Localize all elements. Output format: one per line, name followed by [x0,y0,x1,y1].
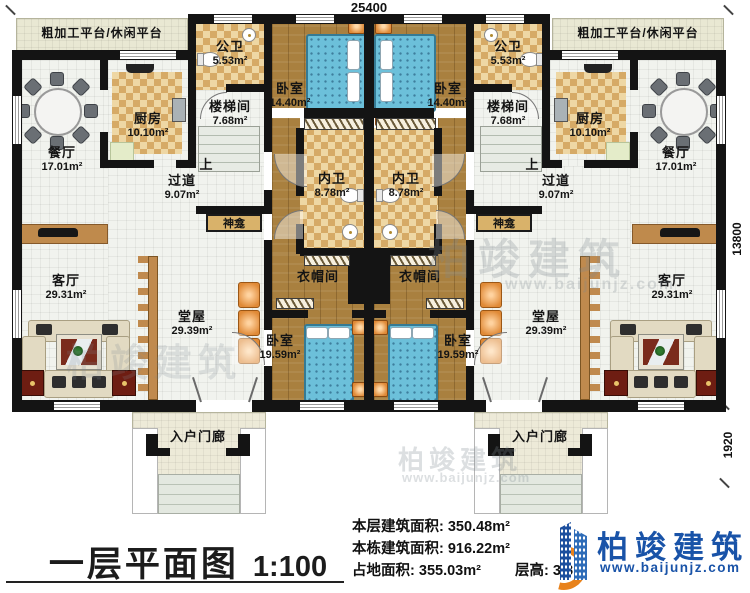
dimension-tick [5,5,16,16]
room-area: 5.53m² [474,55,542,67]
room-name: 楼梯间 [196,100,264,115]
room-area: 7.68m² [474,115,542,127]
room-name: 餐厅 [22,146,102,161]
dining-table-right [660,88,708,136]
sofa-cushion [102,324,118,335]
window [717,290,725,338]
wall [264,240,272,330]
platform-left-label: 粗加工平台/休闲平台 [17,27,187,40]
room-label-kitchen-left: 厨房 10.10m² [108,112,188,139]
dimension-tick [719,478,730,489]
nightstand [372,382,388,397]
room-label-bedroombottom-right: 卧室 19.59m² [434,334,482,361]
plan-scale: 1:100 [253,551,327,583]
wall [304,108,364,118]
up-label-left: 上 [194,158,218,173]
platform-right-label: 粗加工平台/休闲平台 [553,27,723,40]
pillow [347,72,360,102]
plan-title: 一层平面图1:100 [28,536,348,587]
room-label-publicbath-left: 公卫 5.53m² [196,40,264,67]
room-area: 29.31m² [28,289,104,301]
room-name: 过道 [520,174,592,189]
window [296,15,334,23]
logo-tower [560,522,571,580]
window [404,15,442,23]
room-area: 9.07m² [146,189,218,201]
room-name: 卧室 [256,334,304,349]
room-area: 19.59m² [434,349,482,361]
window [13,290,21,338]
tv [38,228,78,237]
wall [100,160,154,168]
room-label-living-left: 客厅 29.31m² [28,274,104,301]
wall [542,400,726,412]
window [120,51,176,59]
wall [196,206,272,214]
up-label-right: 上 [520,158,544,173]
porch-steps-left [158,474,240,514]
room-name: 客厅 [634,274,710,289]
wall [466,206,542,214]
room-label-closet-right: 衣帽间 [378,270,462,285]
wardrobe-hatch [426,298,464,309]
room-name: 楼梯间 [474,100,542,115]
brand-building-icon [545,522,591,586]
brand-logo: 柏竣建筑 www.baijunjz.com [545,520,745,590]
room-name: 堂屋 [504,310,588,325]
side-table [604,370,628,396]
shrine-niche-right: 神龛 [476,214,532,232]
room-area: 9.07m² [520,189,592,201]
brand-website: www.baijunjz.com [600,560,741,575]
dimension-top: 25400 [334,0,404,15]
shrine-label: 神龛 [208,218,260,230]
wardrobe-hatch [390,255,436,266]
wall [188,24,196,164]
room-name: 内卫 [374,172,438,187]
platform-left: 粗加工平台/休闲平台 [16,18,188,52]
room-label-bedroombottom-left: 卧室 19.59m² [256,334,304,361]
chair [50,72,64,86]
wall [630,60,638,90]
wall [466,366,474,400]
wall [474,84,512,92]
sink [382,224,398,240]
room-label-stairwell-left: 楼梯间 7.68m² [196,100,264,127]
plant [73,346,83,356]
stat-label: 本层建筑面积: [352,519,444,535]
window [394,402,438,410]
pillow [380,40,393,70]
room-label-hall-left: 堂屋 29.39m² [150,310,234,337]
room-name: 衣帽间 [378,270,462,285]
room-area: 7.68m² [196,115,264,127]
dining-table-left [34,88,82,136]
wall [584,160,638,168]
sofa-cushion [654,376,668,388]
room-area: 17.01m² [636,161,716,173]
room-area: 29.31m² [634,289,710,301]
wall-party [364,14,374,412]
room-area: 14.40m² [262,97,318,109]
wall [100,60,108,90]
window [562,51,618,59]
range-hood-right [584,64,612,73]
room-name: 公卫 [474,40,542,55]
stat-value: 916.22m² [448,541,510,557]
room-label-corridor-right: 过道 9.07m² [520,174,592,201]
room-area: 29.39m² [504,325,588,337]
chair [84,104,98,118]
chair [642,104,656,118]
platform-right: 粗加工平台/休闲平台 [552,18,724,52]
sofa-cushion [634,376,648,388]
room-area: 8.78m² [300,187,364,199]
plan-title-text: 一层平面图 [49,545,239,584]
title-underline [6,581,344,583]
wall [542,24,550,164]
wall [374,108,434,118]
porch-label-left: 入户门廊 [156,430,240,445]
side-table [20,370,44,396]
window [638,402,684,410]
plant [655,346,665,356]
dimension-tick [723,5,734,16]
cushion [238,310,260,336]
room-name: 卧室 [420,82,476,97]
wardrobe-hatch [304,255,350,266]
pillow [390,327,412,339]
window [54,402,100,410]
room-label-living-right: 客厅 29.31m² [634,274,710,301]
room-label-innerbath-right: 内卫 8.78m² [374,172,438,199]
room-name: 过道 [146,174,218,189]
logo-tower [574,529,587,580]
room-label-innerbath-left: 内卫 8.78m² [300,172,364,199]
porch-label-right: 入户门廊 [498,430,582,445]
room-name: 厨房 [108,112,188,127]
room-label-dining-right: 餐厅 17.01m² [636,146,716,173]
sofa-cushion [620,324,636,335]
wall [264,190,272,206]
wall [466,190,474,206]
wall [272,310,308,318]
room-name: 衣帽间 [276,270,360,285]
wall [352,310,364,318]
stat-value: 350.48m² [448,519,510,535]
room-label-stairwell-right: 楼梯间 7.68m² [474,100,542,127]
room-name: 厨房 [550,112,630,127]
room-area: 29.39m² [150,325,234,337]
porch-corner-mark [226,448,250,456]
wall [12,400,196,412]
room-area: 17.01m² [22,161,102,173]
room-label-corridor-left: 过道 9.07m² [146,174,218,201]
wardrobe-hatch [276,298,314,309]
sofa-cushion [36,324,52,335]
room-area: 10.10m² [550,127,630,139]
pillow [412,327,434,339]
range-hood-left [126,64,154,73]
dimension-porch: 1920 [721,425,735,465]
pillow [328,327,350,339]
shrine-niche-left: 神龛 [206,214,262,232]
room-label-publicbath-right: 公卫 5.53m² [474,40,542,67]
room-area: 14.40m² [420,97,476,109]
sink [342,224,358,240]
cushion [238,282,260,308]
sofa-cushion [674,376,688,388]
room-name: 餐厅 [636,146,716,161]
porch-corner-mark [146,448,170,456]
room-label-closet-left: 衣帽间 [276,270,360,285]
room-name: 客厅 [28,274,104,289]
room-name: 内卫 [300,172,364,187]
room-label-bedroomtop-right: 卧室 14.40m² [420,82,476,109]
chair [676,72,690,86]
wall [226,84,264,92]
pillow [380,72,393,102]
sofa-cushion [686,324,702,335]
room-name: 卧室 [434,334,482,349]
room-name: 卧室 [262,82,318,97]
wall [374,310,386,318]
pillow [306,327,328,339]
sofa-cushion [92,376,106,388]
wall [264,366,272,400]
side-table [112,370,136,396]
room-area: 19.59m² [256,349,304,361]
room-label-hall-right: 堂屋 29.39m² [504,310,588,337]
room-name: 公卫 [196,40,264,55]
stat-label: 占地面积: [352,563,415,579]
room-area: 5.53m² [196,55,264,67]
room-label-bedroomtop-left: 卧室 14.40m² [262,82,318,109]
sofa-cushion [72,376,86,388]
wall [252,400,486,412]
window [717,96,725,144]
sofa-cushion [52,376,66,388]
wardrobe-hatch [376,118,436,130]
porch-corner-mark [568,448,592,456]
wall [430,310,466,318]
window [300,402,344,410]
window [13,96,21,144]
room-label-kitchen-right: 厨房 10.10m² [550,112,630,139]
wall [466,240,474,330]
room-area: 8.78m² [374,187,438,199]
room-name: 堂屋 [150,310,234,325]
room-area: 10.10m² [108,127,188,139]
porch-corner-mark [490,448,514,456]
stat-value: 355.03m² [419,563,481,579]
window [486,15,524,23]
floor-plan-page: 25400 13800 1920 粗加工平台/休闲平台 粗加工平台/休闲平台 [0,0,750,593]
wardrobe-hatch [304,118,364,130]
pillow [347,40,360,70]
stat-label: 本栋建筑面积: [352,541,444,557]
window [214,15,252,23]
nightstand [372,320,388,335]
dimension-right: 13800 [730,214,744,264]
porch-steps-right [500,474,582,514]
room-label-dining-left: 餐厅 17.01m² [22,146,102,173]
tv [660,228,700,237]
shrine-label: 神龛 [478,218,530,230]
cushion [480,282,502,308]
